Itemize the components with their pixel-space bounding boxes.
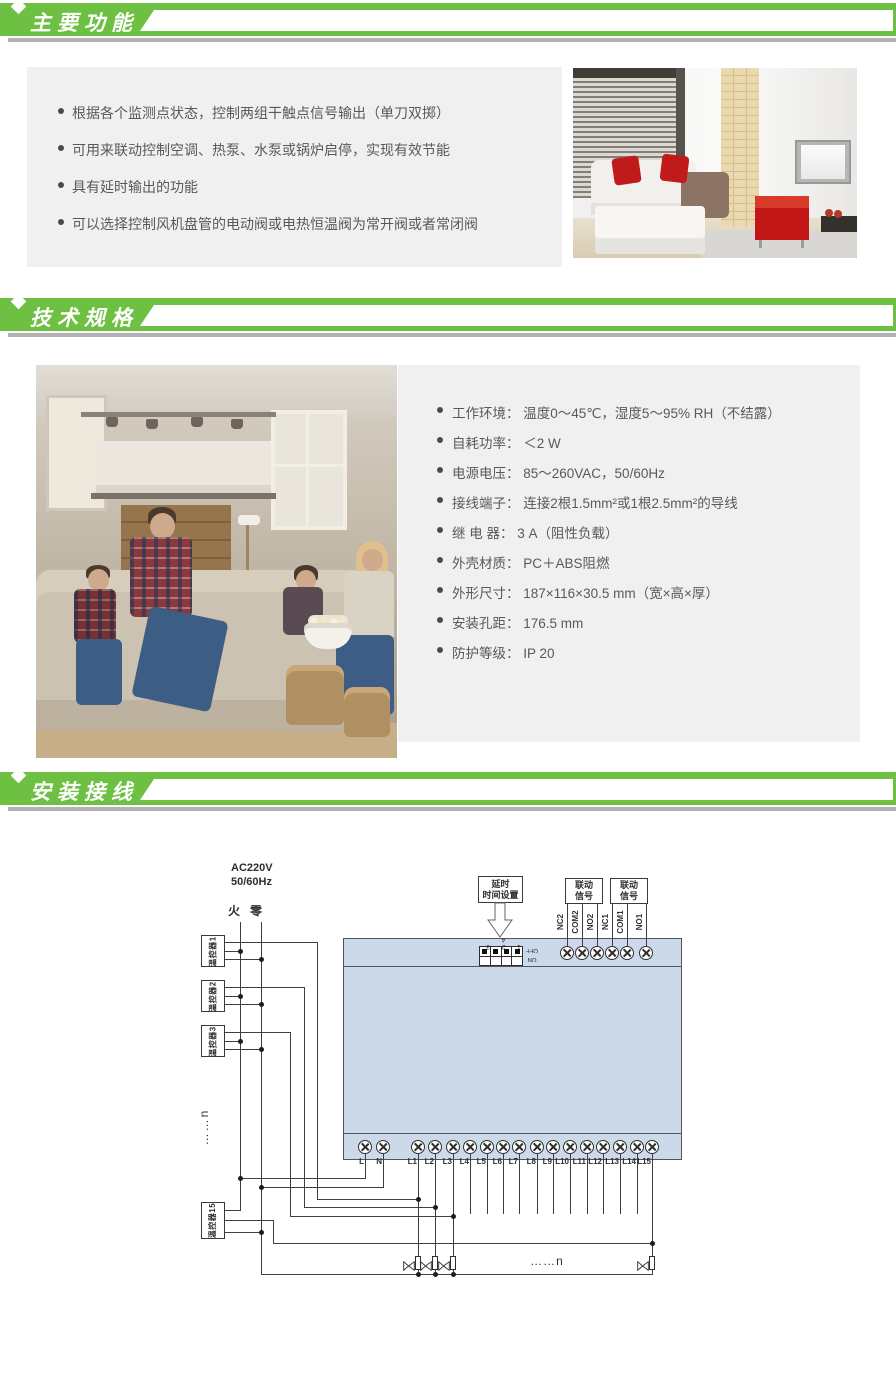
header-shadow-line (8, 333, 896, 337)
section-header-wiring: 安装接线 (0, 769, 896, 815)
screw-terminal (428, 1140, 442, 1154)
family-photo (36, 365, 397, 758)
linkage-line1: 联动 (575, 880, 593, 891)
junction-dot (259, 1002, 264, 1007)
junction-dot (416, 1272, 421, 1277)
linkage-line2: 信号 (575, 891, 593, 902)
screw-terminal (376, 1140, 390, 1154)
spec-item: 安装孔距： 176.5 mm (452, 612, 583, 632)
delay-box-line1: 延时 (482, 879, 518, 890)
screw-terminal (358, 1140, 372, 1154)
spec-value: 85～260VAC，50/60Hz (520, 466, 665, 481)
wiring-diagram: AC220V 50/60Hz 火 零 延时 时间设置 联动 信号 联动 信号 (0, 840, 896, 1310)
spec-item: 外壳材质： PC＋ABS阻燃 (452, 552, 610, 572)
screw-terminal (546, 1140, 560, 1154)
wire (646, 903, 647, 947)
header-shadow-line (8, 38, 896, 42)
screw-terminal (580, 1140, 594, 1154)
wire (317, 1199, 419, 1200)
wall-tv-shape (795, 140, 851, 184)
linkage-signal-box-1: 联动 信号 (610, 878, 648, 904)
spec-label: 自耗功率： (452, 436, 520, 451)
spec-value: 187×116×30.5 mm（宽×高×厚） (520, 586, 719, 601)
feature-item: 可用来联动控制空调、热泵、水泵或锅炉启停，实现有效节能 (72, 140, 450, 160)
output-terminal-label: NC1 (600, 902, 612, 942)
wire (240, 922, 241, 1211)
output-terminal-label: NO1 (634, 902, 646, 942)
mother-head-shape (362, 549, 383, 571)
wire (317, 942, 318, 1200)
thermostat-box: 温控器3 (201, 1025, 225, 1057)
junction-dot (451, 1272, 456, 1277)
kitchen-cabinets-shape (96, 441, 271, 493)
wire (652, 1270, 653, 1275)
decor-ball-shape (834, 210, 842, 218)
father-head-shape (150, 513, 175, 539)
features-panel: 根据各个监测点状态，控制两组干触点信号输出（单刀双掷）可用来联动控制空调、热泵、… (27, 67, 562, 267)
junction-dot (259, 1185, 264, 1190)
thermostat-label: 温控器2 (208, 981, 219, 1011)
bullet-dot (437, 407, 443, 413)
screw-terminal (645, 1140, 659, 1154)
dip-off-label: OFF (524, 947, 540, 953)
hanging-pot-shape (106, 417, 118, 427)
wire (224, 1004, 262, 1005)
red-pillow-shape (659, 153, 689, 183)
bullet-dot (437, 557, 443, 563)
screw-terminal (639, 946, 653, 960)
boy-head-shape (88, 569, 109, 591)
bullet-dot (437, 647, 443, 653)
section-header-tech-specs: 技术规格 (0, 295, 896, 341)
dip-numbers-label: 1 2 3 4 (479, 936, 523, 950)
screw-terminal (620, 946, 634, 960)
junction-dot (451, 1214, 456, 1219)
controller-device-body (343, 938, 682, 1160)
feature-item: 具有延时输出的功能 (72, 177, 198, 197)
neutral-wire-label: 零 (250, 902, 262, 919)
boy-shirt-shape (74, 589, 116, 643)
thermostat-box: 温控器1 (201, 935, 225, 967)
screw-terminal (530, 1140, 544, 1154)
wire (261, 922, 262, 1275)
section-title: 安装接线 (30, 776, 138, 806)
wire (627, 903, 628, 947)
wire (224, 1032, 291, 1033)
sideboard-shape (821, 216, 857, 232)
spec-item: 接线端子： 连接2根1.5mm²或1根2.5mm²的导线 (452, 492, 738, 512)
wire (304, 987, 305, 1208)
spec-value: IP 20 (520, 646, 555, 661)
ottoman-leg-shape (759, 240, 762, 248)
spec-value: 连接2根1.5mm²或1根2.5mm²的导线 (520, 496, 738, 511)
screw-terminal (446, 1140, 460, 1154)
bullet-dot (58, 145, 64, 151)
spec-label: 外壳材质： (452, 556, 520, 571)
counter-shape (91, 493, 276, 499)
bullet-dot (58, 219, 64, 225)
wire (224, 987, 305, 988)
bullet-dot (437, 497, 443, 503)
junction-dot (433, 1272, 438, 1277)
spec-value: ＜2 W (520, 436, 561, 451)
screw-terminal (411, 1140, 425, 1154)
power-frequency: 50/60Hz (231, 876, 273, 890)
red-ottoman-shape (755, 196, 809, 240)
wire (224, 1232, 262, 1233)
spec-label: 安装孔距： (452, 616, 520, 631)
junction-dot (238, 1176, 243, 1181)
wire (290, 1216, 454, 1217)
living-room-photo (573, 68, 857, 258)
linkage-signal-box-2: 联动 信号 (565, 878, 603, 904)
screw-terminal (463, 1140, 477, 1154)
thermostat-label: 温控器15 (208, 1203, 219, 1238)
hanging-pot-shape (191, 417, 203, 427)
feature-item: 可以选择控制风机盘管的电动阀或电热恒温阀为常开阀或者常闭阀 (72, 214, 478, 234)
screw-terminal (630, 1140, 644, 1154)
wire (261, 1187, 384, 1188)
screw-terminal (605, 946, 619, 960)
wire (224, 1210, 241, 1211)
junction-dot (259, 1047, 264, 1052)
wire (224, 959, 262, 960)
bullet-dot (437, 587, 443, 593)
device-divider (343, 1133, 682, 1134)
wire (612, 903, 613, 947)
ottoman-leg-shape (801, 240, 804, 248)
output-terminal-label: COM2 (570, 902, 582, 942)
screw-terminal (512, 1140, 526, 1154)
junction-dot (238, 1039, 243, 1044)
wire (418, 1154, 419, 1257)
delay-setting-box: 延时 时间设置 (478, 876, 523, 903)
spec-label: 电源电压： (452, 466, 520, 481)
valve-icon (420, 1258, 432, 1268)
section-header-main-functions: 主要功能 (0, 0, 896, 46)
valve-icon (438, 1258, 450, 1268)
power-source-label: AC220V 50/60Hz (231, 862, 273, 890)
wire (224, 942, 318, 943)
junction-dot (238, 994, 243, 999)
linkage-line1: 联动 (620, 880, 638, 891)
boy-jeans-shape (76, 639, 122, 705)
bar-stool-shape (238, 515, 260, 525)
spec-label: 继 电 器： (452, 526, 514, 541)
header-white-band (140, 10, 893, 31)
section-title: 技术规格 (30, 302, 138, 332)
bullet-dot (437, 437, 443, 443)
valve-body (450, 1256, 456, 1270)
output-terminal-label: NO2 (585, 902, 597, 942)
thermostat-label: 温控器3 (208, 1026, 219, 1056)
bullet-dot (58, 182, 64, 188)
valve-body (649, 1256, 655, 1270)
more-valves-ellipsis: ……n (521, 1254, 573, 1268)
decor-ball-shape (825, 209, 833, 217)
chaise-shape (595, 206, 705, 254)
junction-dot (416, 1197, 421, 1202)
screw-terminal (596, 1140, 610, 1154)
stump-table-shape (344, 687, 390, 737)
father-plaid-shirt-shape (130, 537, 192, 617)
bullet-dot (437, 467, 443, 473)
header-white-band (140, 779, 893, 800)
device-divider (343, 966, 682, 967)
hanging-pot-shape (146, 419, 158, 429)
spec-item: 继 电 器： 3 A（阻性负载） (452, 522, 619, 542)
spec-label: 外形尺寸： (452, 586, 520, 601)
feature-item: 根据各个监测点状态，控制两组干触点信号输出（单刀双掷） (72, 103, 450, 123)
dip-on-label: ON (524, 956, 540, 962)
thermostat-label: 温控器1 (208, 936, 219, 966)
power-voltage: AC220V (231, 862, 273, 876)
bullet-dot (437, 617, 443, 623)
spec-value: 3 A（阻性负载） (514, 526, 619, 541)
wire (597, 903, 598, 947)
junction-dot (259, 1230, 264, 1235)
output-terminal-label: NC2 (555, 902, 567, 942)
section-title: 主要功能 (30, 7, 138, 37)
red-pillow-shape (611, 155, 641, 185)
more-thermostats-ellipsis: ……n (197, 1107, 211, 1147)
screw-terminal (480, 1140, 494, 1154)
screw-terminal (613, 1140, 627, 1154)
screw-terminal (575, 946, 589, 960)
bullet-dot (58, 108, 64, 114)
spec-item: 外形尺寸： 187×116×30.5 mm（宽×高×厚） (452, 582, 719, 602)
wire (273, 1243, 653, 1244)
ottoman-top-shape (755, 196, 809, 208)
spec-item: 工作环境： 温度0～45℃，湿度5～95% RH（不结露） (452, 402, 781, 422)
linkage-line2: 信号 (620, 891, 638, 902)
output-terminal-label: COM1 (615, 902, 627, 942)
header-white-band (140, 305, 893, 326)
wire (224, 1049, 262, 1050)
live-wire-label: 火 (228, 902, 240, 919)
junction-dot (259, 957, 264, 962)
input-terminal-label: L15 (629, 1157, 651, 1166)
screw-terminal (590, 946, 604, 960)
wire (290, 1032, 291, 1217)
spec-value: 温度0～45℃，湿度5～95% RH（不结露） (520, 406, 781, 421)
spec-value: PC＋ABS阻燃 (520, 556, 610, 571)
junction-dot (238, 949, 243, 954)
wire (383, 1154, 384, 1188)
junction-dot (433, 1205, 438, 1210)
wire (453, 1154, 454, 1257)
down-arrow-icon (484, 902, 516, 939)
hanging-pot-shape (231, 419, 243, 429)
thermostat-box: 温控器15 (201, 1202, 225, 1239)
right-window-shape (271, 410, 347, 530)
wire (567, 903, 568, 947)
spec-item: 自耗功率： ＜2 W (452, 432, 561, 452)
wire (224, 1220, 274, 1221)
wire (582, 903, 583, 947)
blinds-top-bar-shape (573, 68, 681, 78)
wire (261, 1274, 653, 1275)
bullet-dot (437, 527, 443, 533)
tv-screen-shape (801, 145, 845, 179)
wire (273, 1220, 274, 1244)
thermostat-box: 温控器2 (201, 980, 225, 1012)
delay-box-line2: 时间设置 (482, 890, 518, 901)
stool-leg-shape (246, 525, 249, 571)
spec-label: 防护等级： (452, 646, 520, 661)
spec-value: 176.5 mm (520, 616, 584, 631)
screw-terminal (560, 946, 574, 960)
spec-label: 接线端子： (452, 496, 520, 511)
product-page: 主要功能 根据各个监测点状态，控制两组干触点信号输出（单刀双掷）可用来联动控制空… (0, 0, 896, 1374)
wire (240, 1178, 366, 1179)
valve-icon (637, 1258, 649, 1268)
junction-dot (650, 1241, 655, 1246)
input-terminal-label: N (360, 1157, 382, 1166)
spec-item: 防护等级： IP 20 (452, 642, 555, 662)
header-shadow-line (8, 807, 896, 811)
specs-panel: 工作环境： 温度0～45℃，湿度5～95% RH（不结露）自耗功率： ＜2 W电… (398, 365, 860, 742)
spec-item: 电源电压： 85～260VAC，50/60Hz (452, 462, 665, 482)
stump-table-shape (286, 665, 344, 725)
screw-terminal (496, 1140, 510, 1154)
wire (304, 1207, 436, 1208)
screw-terminal (563, 1140, 577, 1154)
valve-icon (403, 1258, 415, 1268)
spec-label: 工作环境： (452, 406, 520, 421)
